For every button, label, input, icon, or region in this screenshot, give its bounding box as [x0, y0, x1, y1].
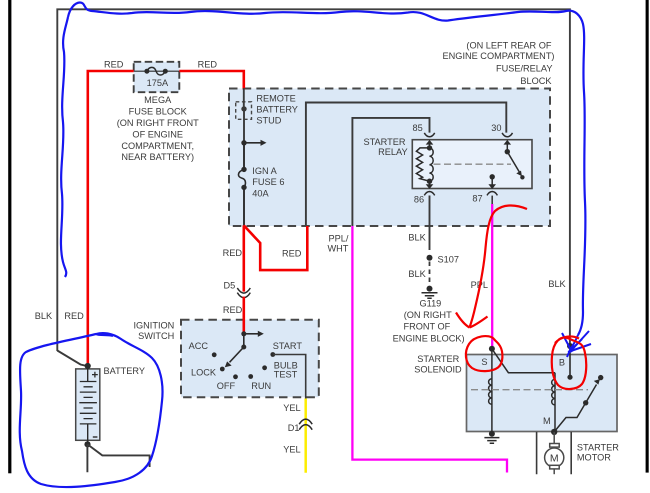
svg-text:BLK: BLK: [408, 269, 426, 279]
svg-text:COMPARTMENT,: COMPARTMENT,: [121, 141, 194, 151]
svg-text:RED: RED: [282, 248, 302, 258]
svg-text:STARTER: STARTER: [577, 443, 619, 453]
svg-text:IGN A: IGN A: [252, 166, 277, 176]
svg-text:YEL: YEL: [283, 403, 300, 413]
svg-text:RUN: RUN: [251, 381, 271, 391]
svg-text:BATTERY: BATTERY: [104, 366, 146, 376]
svg-text:TEST: TEST: [274, 369, 298, 379]
svg-text:G119: G119: [420, 299, 442, 309]
svg-text:BLK: BLK: [548, 279, 566, 289]
svg-text:BLOCK: BLOCK: [520, 76, 552, 86]
svg-text:FRONT OF: FRONT OF: [404, 322, 451, 332]
svg-text:ACC: ACC: [189, 341, 209, 351]
svg-text:LOCK: LOCK: [191, 367, 217, 377]
svg-text:S: S: [481, 357, 487, 367]
svg-text:85: 85: [412, 123, 422, 133]
svg-text:86: 86: [414, 194, 424, 204]
svg-text:RED: RED: [198, 60, 218, 70]
svg-text:RED: RED: [223, 248, 243, 258]
svg-text:RELAY: RELAY: [378, 147, 407, 157]
svg-text:B: B: [559, 358, 565, 368]
svg-text:M: M: [550, 452, 559, 464]
svg-text:MEGA: MEGA: [144, 95, 172, 105]
svg-text:SWITCH: SWITCH: [138, 331, 174, 341]
svg-text:S107: S107: [438, 255, 459, 265]
svg-text:BATTERY: BATTERY: [256, 105, 298, 115]
svg-text:SOLENOID: SOLENOID: [414, 365, 462, 375]
svg-text:STARTER: STARTER: [363, 137, 405, 147]
svg-text:ENGINE BLOCK): ENGINE BLOCK): [393, 333, 465, 343]
svg-text:IGNITION: IGNITION: [133, 321, 174, 331]
svg-text:BLK: BLK: [35, 311, 53, 321]
svg-text:RED: RED: [104, 60, 124, 70]
svg-text:OF ENGINE: OF ENGINE: [132, 129, 183, 139]
svg-text:40A: 40A: [252, 188, 269, 198]
svg-text:RED: RED: [64, 311, 84, 321]
svg-text:M: M: [543, 416, 551, 426]
svg-text:START: START: [273, 341, 303, 351]
svg-text:FUSE BLOCK: FUSE BLOCK: [129, 106, 188, 116]
svg-text:STARTER: STARTER: [417, 354, 459, 364]
svg-text:YEL: YEL: [283, 445, 300, 455]
svg-text:MOTOR: MOTOR: [577, 452, 611, 462]
svg-text:WHT: WHT: [327, 244, 348, 254]
svg-text:BLK: BLK: [408, 233, 426, 243]
svg-text:NEAR BATTERY): NEAR BATTERY): [121, 152, 194, 162]
svg-text:(ON LEFT REAR OF: (ON LEFT REAR OF: [466, 41, 551, 51]
svg-text:FUSE/RELAY: FUSE/RELAY: [496, 63, 553, 73]
svg-text:RED: RED: [223, 305, 243, 315]
svg-text:PPL/: PPL/: [328, 234, 348, 244]
svg-text:STUD: STUD: [256, 116, 281, 126]
svg-text:30: 30: [491, 123, 501, 133]
svg-text:ENGINE COMPARTMENT): ENGINE COMPARTMENT): [443, 51, 555, 61]
svg-text:(ON RIGHT FRONT: (ON RIGHT FRONT: [117, 118, 199, 128]
svg-text:87: 87: [472, 194, 482, 204]
svg-text:(ON RIGHT: (ON RIGHT: [404, 310, 452, 320]
svg-text:FUSE 6: FUSE 6: [252, 177, 284, 187]
svg-text:REMOTE: REMOTE: [256, 93, 295, 103]
svg-text:175A: 175A: [147, 78, 169, 88]
svg-text:D1: D1: [288, 423, 300, 433]
svg-text:D5: D5: [223, 280, 235, 290]
svg-text:OFF: OFF: [217, 381, 236, 391]
